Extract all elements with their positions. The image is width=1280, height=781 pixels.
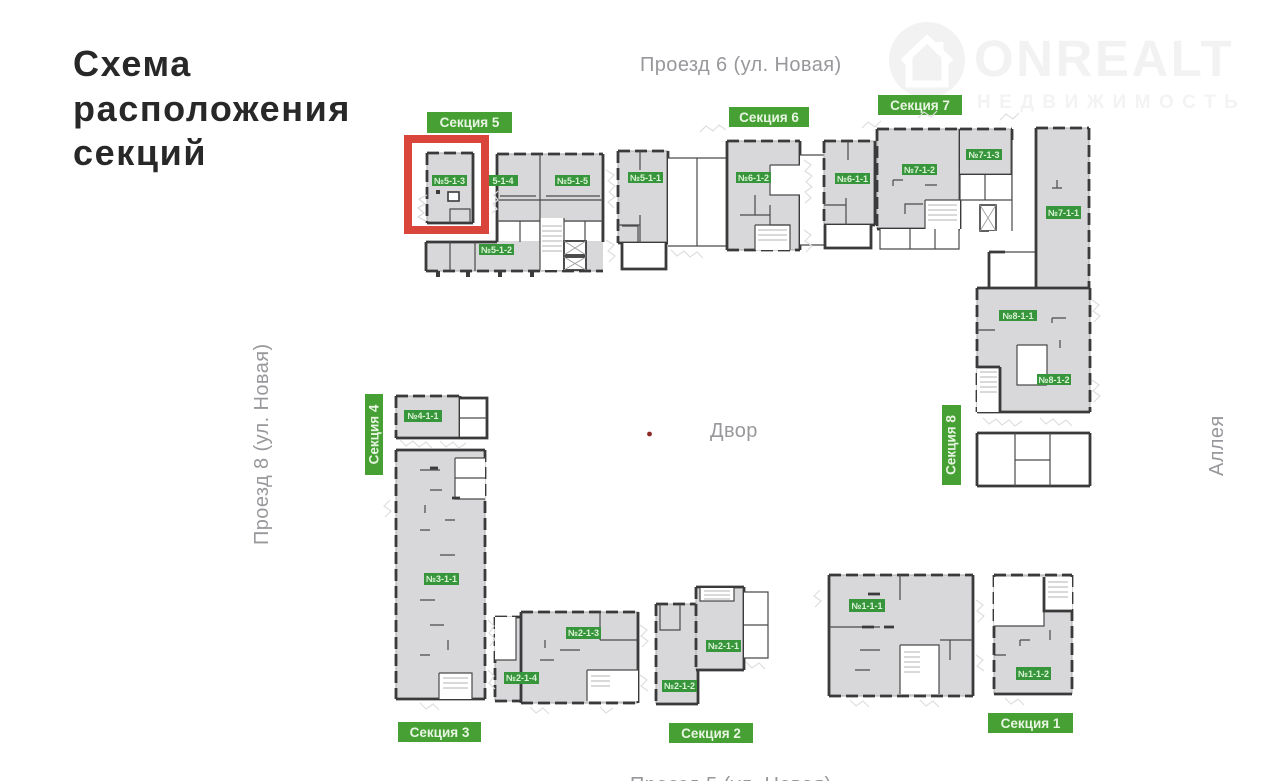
svg-text:Проезд 8 (ул. Новая): Проезд 8 (ул. Новая): [251, 343, 273, 545]
svg-text:№6-1-2: №6-1-2: [738, 173, 769, 183]
svg-text:Секция 5: Секция 5: [440, 115, 500, 130]
svg-text:Проезд 6 (ул. Новая): Проезд 6 (ул. Новая): [640, 54, 842, 76]
svg-text:№7-1-3: №7-1-3: [968, 150, 999, 160]
svg-text:Аллея: Аллея: [1206, 415, 1228, 476]
svg-text:№8-1-2: №8-1-2: [1038, 375, 1069, 385]
svg-text:Секция 1: Секция 1: [1001, 716, 1061, 731]
svg-text:Проезд 5 (ул. Новая): Проезд 5 (ул. Новая): [630, 774, 832, 781]
svg-text:№8-1-1: №8-1-1: [1002, 311, 1033, 321]
svg-text:№4-1-1: №4-1-1: [407, 411, 438, 421]
svg-text:Секция 2: Секция 2: [681, 726, 741, 741]
svg-text:№1-1-2: №1-1-2: [1018, 669, 1049, 679]
svg-text:№7-1-2: №7-1-2: [904, 165, 935, 175]
svg-text:№2-1-2: №2-1-2: [664, 681, 695, 691]
svg-text:№5-1-1: №5-1-1: [630, 173, 661, 183]
svg-text:№2-1-1: №2-1-1: [708, 641, 739, 651]
svg-text:№6-1-1: №6-1-1: [837, 174, 868, 184]
svg-text:Секция 6: Секция 6: [739, 110, 799, 125]
svg-text:№7-1-1: №7-1-1: [1048, 208, 1079, 218]
svg-text:Секция 4: Секция 4: [367, 404, 382, 464]
svg-text:Секция 3: Секция 3: [410, 725, 470, 740]
svg-text:ONREALT: ONREALT: [974, 30, 1234, 87]
svg-text:№2-1-3: №2-1-3: [568, 628, 599, 638]
svg-text:Двор: Двор: [710, 420, 758, 442]
svg-text:Секция 8: Секция 8: [944, 415, 959, 475]
svg-text:№5-1-3: №5-1-3: [434, 176, 465, 186]
svg-text:НЕДВИЖИМОСТЬ: НЕДВИЖИМОСТЬ: [977, 92, 1246, 113]
svg-text:№5-1-5: №5-1-5: [557, 176, 588, 186]
svg-text:№5-1-2: №5-1-2: [481, 245, 512, 255]
svg-text:Секция 7: Секция 7: [890, 98, 950, 113]
svg-text:5-1-4: 5-1-4: [492, 176, 513, 186]
svg-text:№2-1-4: №2-1-4: [506, 673, 537, 683]
svg-text:№3-1-1: №3-1-1: [426, 574, 457, 584]
svg-text:№1-1-1: №1-1-1: [851, 601, 882, 611]
